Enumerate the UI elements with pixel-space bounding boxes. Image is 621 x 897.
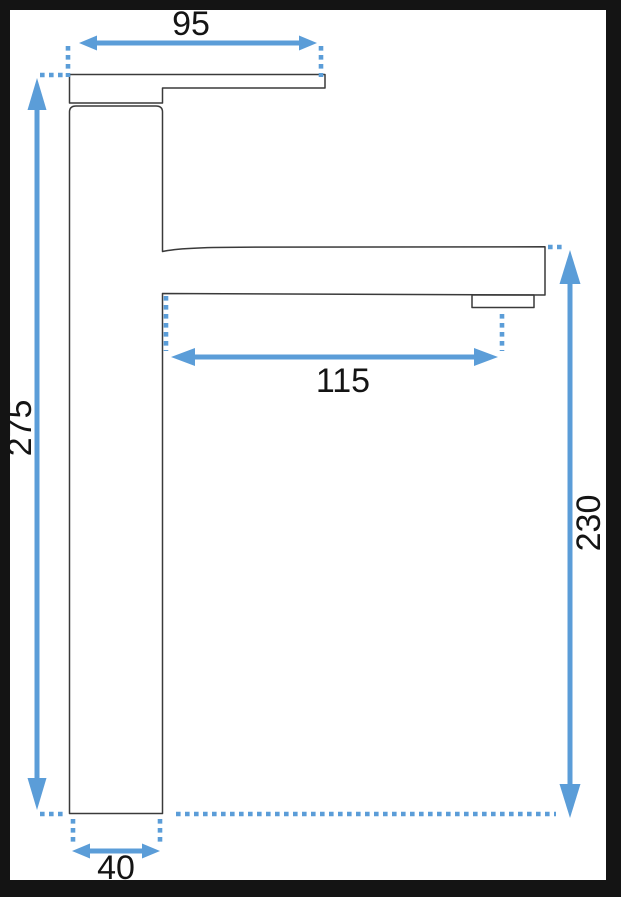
- dimension-base-width: 40: [72, 819, 160, 887]
- arrow-up-head-icon: [28, 78, 47, 110]
- faucet-body-and-spout-outline: [70, 106, 546, 814]
- arrow-down-head-icon: [28, 778, 47, 810]
- dimension-overall-height: 275: [1, 75, 66, 814]
- faucet-dimension-diagram: 95 275 115 230: [0, 0, 621, 897]
- dimension-spout-height: 230: [548, 247, 608, 818]
- arrow-up-head-icon: [560, 250, 581, 284]
- arrow-left-head-icon: [72, 844, 90, 859]
- frame-bottom: [0, 880, 621, 897]
- arrow-left-head-icon: [171, 348, 195, 366]
- arrow-right-head-icon: [299, 36, 317, 51]
- dim-115-label: 115: [316, 362, 370, 400]
- faucet-aerator: [472, 295, 534, 308]
- faucet-drawing: [70, 75, 546, 814]
- image-frame: [0, 0, 621, 897]
- diagram-canvas: 95 275 115 230: [0, 0, 621, 897]
- arrow-right-head-icon: [474, 348, 498, 366]
- frame-right: [606, 0, 621, 897]
- frame-left: [0, 0, 10, 897]
- frame-top: [0, 0, 621, 10]
- faucet-handle-lever: [70, 75, 326, 104]
- dim-230-label: 230: [570, 495, 608, 552]
- arrow-down-head-icon: [560, 784, 581, 818]
- dimension-top-width: 95: [68, 5, 321, 77]
- arrow-left-head-icon: [79, 36, 97, 51]
- dim-95-label: 95: [172, 5, 210, 43]
- dimension-spout-reach: 115: [166, 296, 502, 400]
- arrow-right-head-icon: [142, 844, 160, 859]
